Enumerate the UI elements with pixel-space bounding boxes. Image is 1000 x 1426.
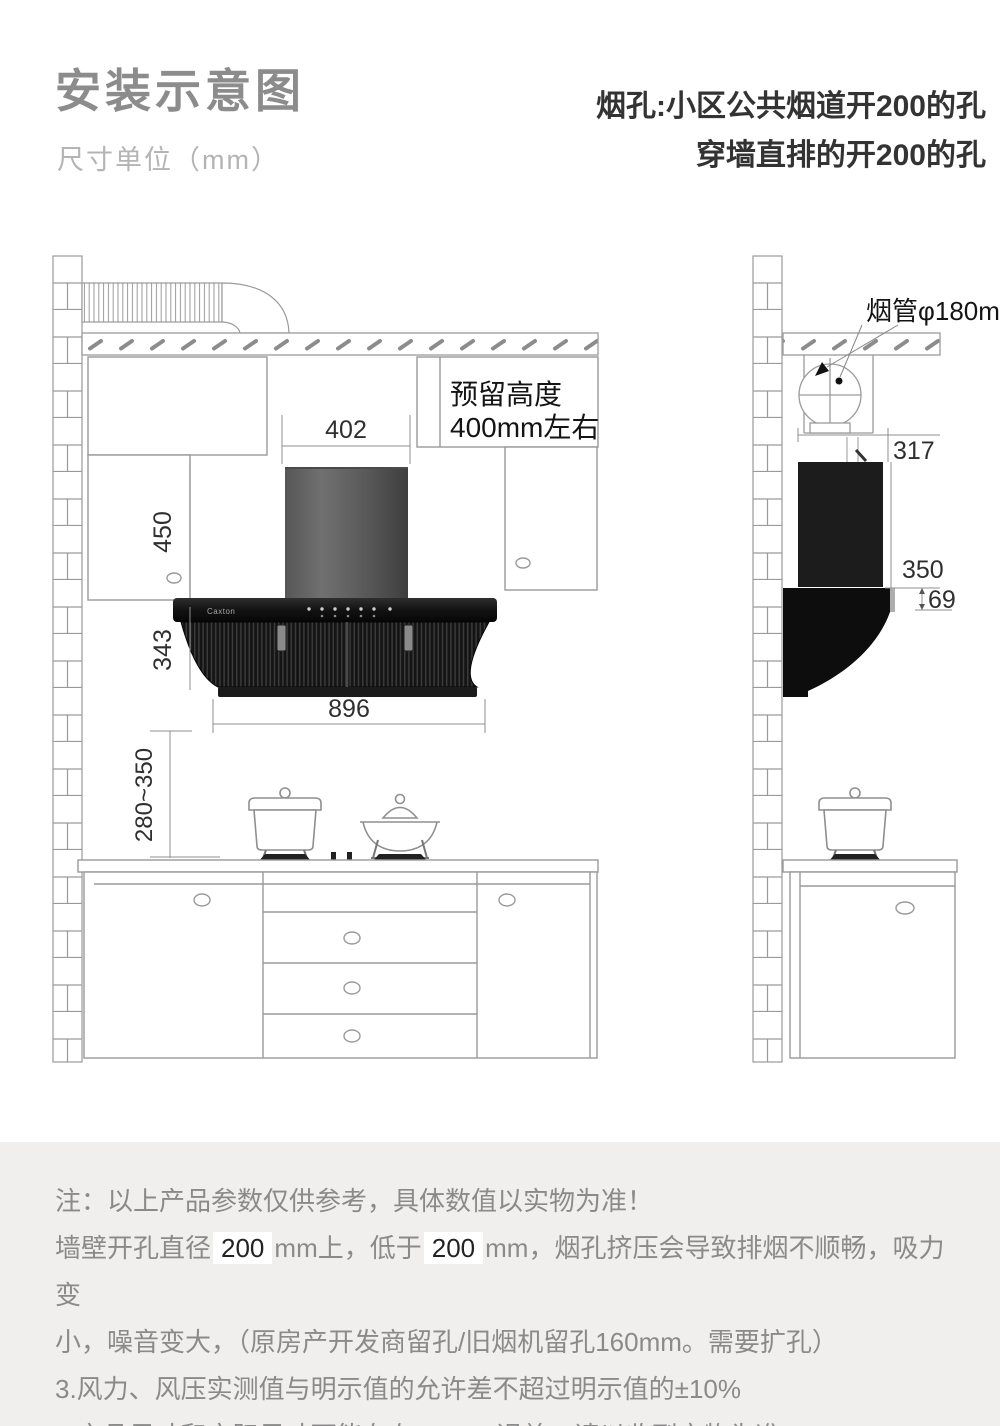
dim-280-350 [150, 731, 220, 858]
countertop-left [78, 860, 598, 872]
dim-69-label: 69 [928, 586, 956, 614]
hood-chimney-side [798, 462, 883, 587]
front-view-drawing: 预留高度 400mm左右 402 450 Caxton [53, 256, 599, 1062]
filter-handle [404, 625, 413, 651]
exhaust-duct [82, 283, 289, 333]
brick-wall-left [53, 256, 82, 1062]
reserve-height-label-line1: 预留高度 [450, 379, 562, 410]
base-cabinet-left [84, 872, 597, 1058]
pot-icon [249, 788, 321, 862]
drawer-handle [344, 932, 360, 944]
range-hood-front: Caxton [173, 598, 497, 697]
note-line2: 墙壁开孔直径200mm上，低于200mm，烟孔挤压会导致排烟不顺畅，吸力变 [55, 1225, 945, 1319]
note-line3: 小，噪音变大，（原房产开发商留孔/旧烟机留孔160mm。需要扩孔） [55, 1319, 945, 1366]
hood-edge-highlight [890, 588, 895, 612]
hood-chimney-front [285, 467, 408, 605]
cabinet-handle [516, 558, 530, 568]
drawer-handle [344, 1030, 360, 1042]
dim-280-350-label: 280~350 [131, 748, 158, 842]
hood-logo: Caxton [207, 607, 235, 616]
dim-896-label: 896 [328, 695, 370, 723]
hole-diameter-value: 200 [424, 1232, 483, 1264]
duct-diameter-label: 烟管φ180mm [866, 296, 1000, 326]
note-line5: 4.产品尺寸和实际尺寸可能存在1-5mm误差，请以收到实物为准 [55, 1413, 945, 1426]
hood-filter-body [181, 622, 489, 687]
hole-diameter-value: 200 [213, 1232, 272, 1264]
drawer-handle [344, 982, 360, 994]
pot-icon-side [819, 788, 891, 862]
ceiling-hatch-right [783, 333, 940, 355]
wok-icon [360, 795, 440, 863]
dim-343-label: 343 [149, 629, 177, 671]
dim-402-label: 402 [325, 416, 367, 444]
duct-cross-section [799, 355, 873, 433]
door-handle [499, 894, 515, 906]
countertop-right [783, 860, 957, 872]
dim-350-label: 350 [902, 556, 944, 584]
hood-pipe-lines [847, 437, 866, 462]
door-handle [194, 894, 210, 906]
installation-diagram-page: 安装示意图 尺寸单位（mm） 烟孔:小区公共烟道开200的孔 穿墙直排的开200… [0, 0, 1000, 1426]
note-line1: 注：以上产品参数仅供参考，具体数值以实物为准！ [55, 1178, 945, 1225]
hood-body-side [783, 588, 890, 697]
cabinet-handle [167, 573, 181, 583]
brick-wall-right [753, 256, 782, 1062]
side-view-drawing: 烟管φ180mm 317 350 [753, 256, 1000, 1062]
note-line4: 3.风力、风压实测值与明示值的允许差不超过明示值的±10% [55, 1366, 945, 1413]
notes-section: 注：以上产品参数仅供参考，具体数值以实物为准！ 墙壁开孔直径200mm上，低于2… [0, 1142, 1000, 1426]
dim-450-label: 450 [149, 511, 177, 553]
gas-stove [249, 788, 440, 862]
reserve-height-label-line2: 400mm左右 [450, 412, 599, 443]
ceiling-hatch-left [82, 333, 598, 355]
side-cabinet-right [505, 447, 597, 590]
filter-handle [277, 625, 286, 651]
dim-317-label: 317 [893, 437, 935, 465]
upper-cabinet-left [88, 357, 267, 455]
base-cabinet-right [790, 872, 955, 1058]
door-handle [896, 902, 914, 914]
